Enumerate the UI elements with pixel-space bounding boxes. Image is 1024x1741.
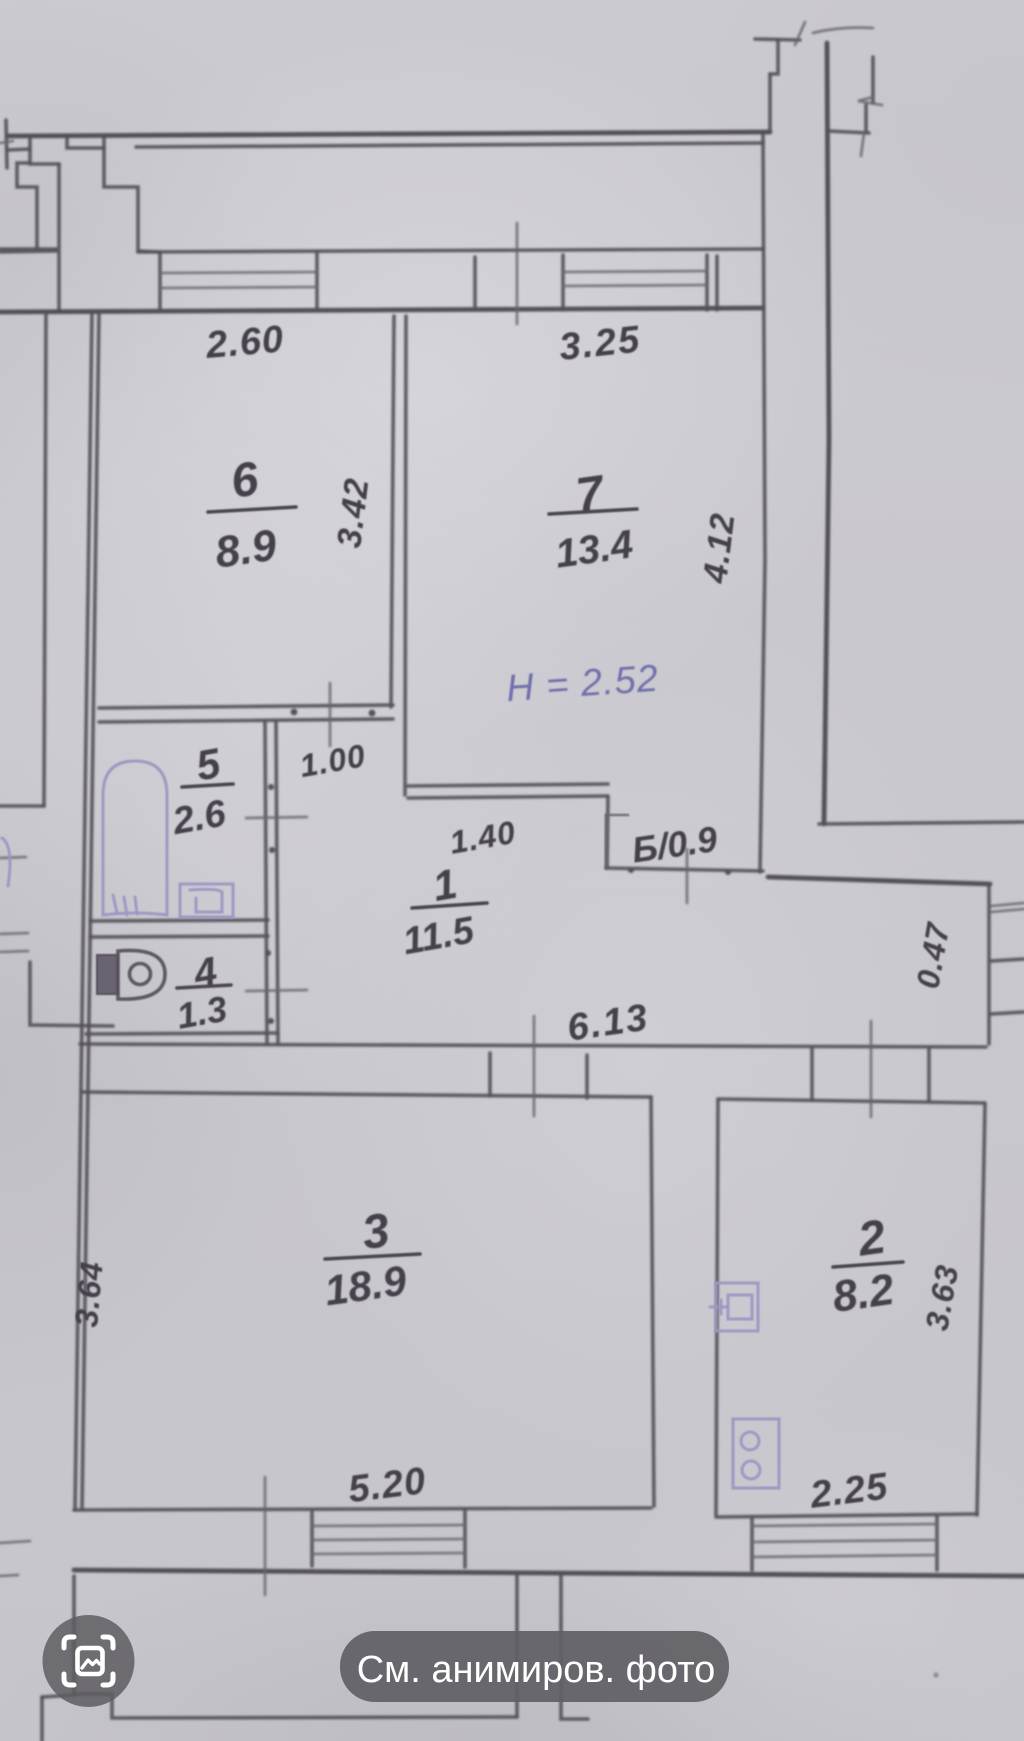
svg-text:4.12: 4.12 [696,511,742,586]
svg-text:1.3: 1.3 [174,988,230,1037]
svg-text:3: 3 [359,1204,393,1260]
svg-text:Н = 2.52: Н = 2.52 [505,658,660,711]
svg-text:13.4: 13.4 [553,522,636,576]
svg-text:5.20: 5.20 [346,1460,429,1511]
svg-text:1: 1 [429,860,460,910]
svg-text:2.60: 2.60 [203,318,285,367]
svg-text:8.2: 8.2 [829,1265,897,1322]
svg-text:11.5: 11.5 [400,909,478,963]
svg-text:18.9: 18.9 [322,1256,410,1314]
svg-text:Б/0.9: Б/0.9 [629,818,719,871]
svg-text:1.00: 1.00 [297,737,369,784]
svg-text:2.6: 2.6 [169,792,230,843]
svg-text:3.63: 3.63 [918,1262,965,1334]
svg-text:5: 5 [193,739,225,789]
svg-text:3.42: 3.42 [330,476,376,550]
svg-text:2.25: 2.25 [807,1465,890,1516]
svg-text:См. анимиров. фото: См. анимиров. фото [357,1649,716,1691]
svg-text:3.25: 3.25 [557,319,643,369]
svg-text:3.64: 3.64 [68,1259,110,1328]
svg-text:0.47: 0.47 [909,919,956,992]
svg-text:8.9: 8.9 [212,521,280,578]
svg-text:6.13: 6.13 [565,997,652,1050]
svg-text:1.40: 1.40 [447,814,519,861]
svg-text:6: 6 [228,452,262,508]
svg-text:2: 2 [854,1210,889,1266]
